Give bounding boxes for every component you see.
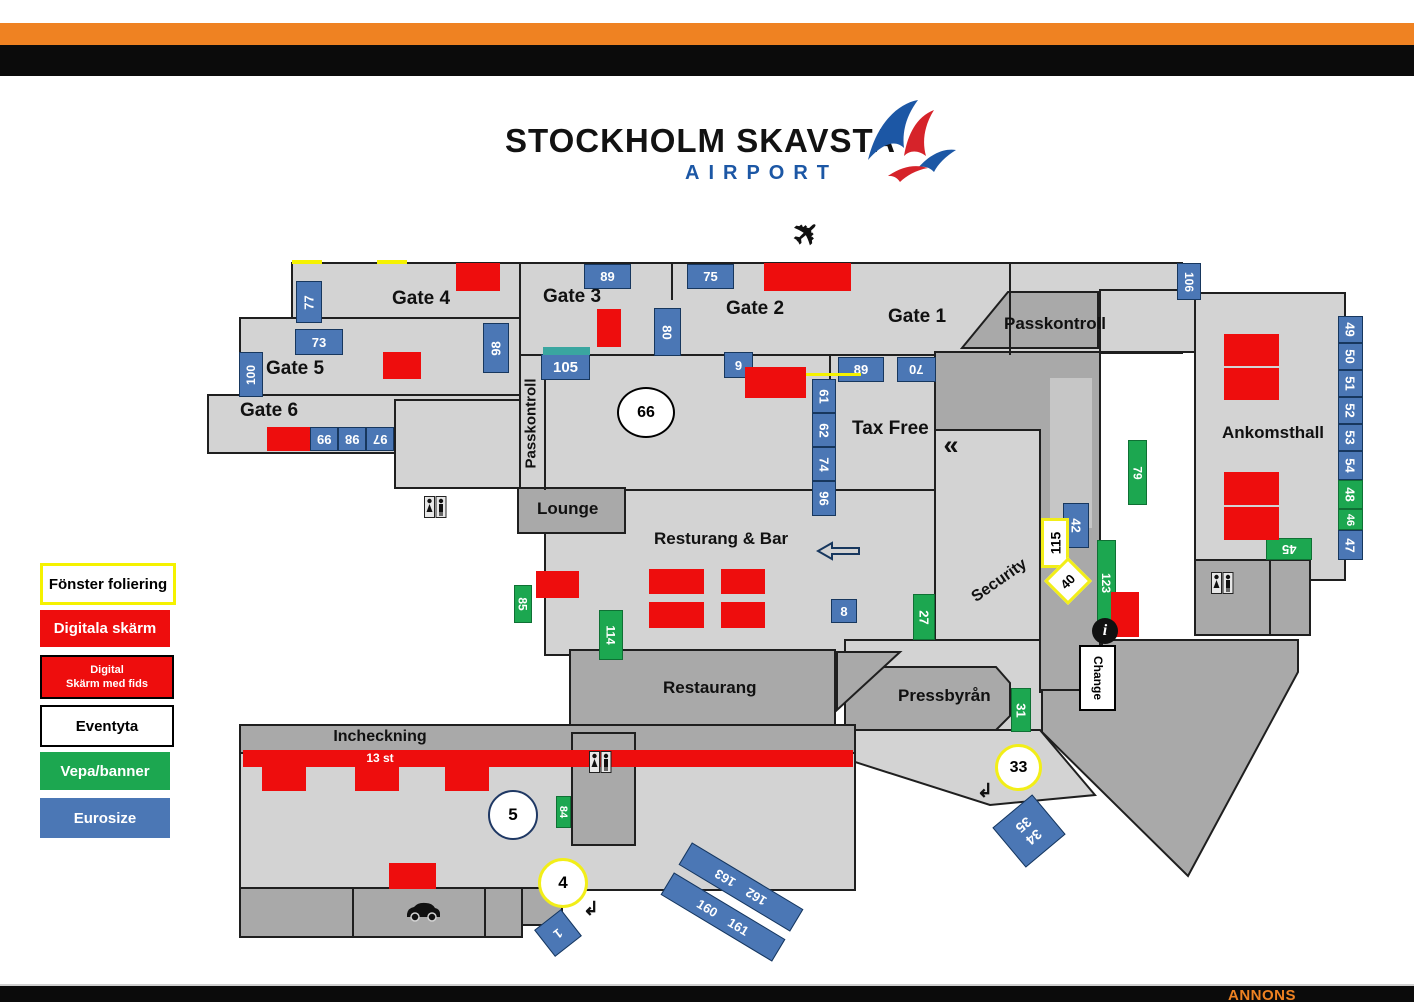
- marker-33: 33: [995, 744, 1042, 791]
- digital-marker: [1224, 334, 1279, 366]
- digital-marker: [389, 863, 436, 889]
- marker-98: 98: [338, 427, 366, 451]
- window-foil-line: [377, 260, 407, 264]
- marker-106: 106: [1177, 263, 1201, 300]
- marker-27: 27: [913, 594, 935, 640]
- marker-89: 89: [838, 357, 884, 382]
- label-restaurang: Restaurang: [663, 678, 757, 698]
- digital-marker: [456, 263, 500, 291]
- label-passkontroll-corridor: Passkontroll: [523, 365, 540, 483]
- marker-i: i: [1092, 618, 1118, 644]
- digital-marker: [649, 569, 704, 594]
- label-gate-5: Gate 5: [266, 358, 324, 380]
- marker-61: 61: [812, 379, 836, 413]
- teal-strip: [543, 347, 590, 355]
- marker-73: 73: [295, 329, 343, 355]
- marker-53: 53: [1338, 424, 1363, 451]
- marker-46: 46: [1338, 509, 1363, 530]
- digital-marker: [1224, 368, 1279, 400]
- label-gate-1: Gate 1: [888, 306, 946, 328]
- digital-marker: [721, 569, 765, 594]
- digital-marker: [355, 767, 399, 791]
- digital-marker: [597, 309, 621, 347]
- marker-47: 47: [1338, 530, 1363, 560]
- digital-marker: [536, 571, 579, 598]
- label-gate-3: Gate 3: [543, 286, 601, 308]
- marker-Change: Change: [1079, 645, 1116, 711]
- marker-97: 97: [366, 427, 394, 451]
- car-icon: [404, 900, 442, 923]
- label-gate-4: Gate 4: [392, 288, 450, 310]
- label-pressbyran: Pressbyrån: [898, 686, 991, 706]
- label-gate-6: Gate 6: [240, 400, 298, 422]
- floorplan-svg: [0, 0, 1414, 1000]
- marker-74: 74: [812, 447, 836, 481]
- digital-marker: [267, 427, 310, 451]
- marker-84: 84: [556, 796, 571, 828]
- marker-31: 31: [1011, 688, 1031, 732]
- marker-114: 114: [599, 610, 623, 660]
- annonskarta-page: { "logo":{"title":"STOCKHOLM SKAVSTA","s…: [0, 0, 1414, 1000]
- marker-52: 52: [1338, 397, 1363, 424]
- marker-48: 48: [1338, 480, 1363, 509]
- label-incheckning: Incheckning: [300, 728, 460, 746]
- marker-66: 66: [617, 387, 675, 438]
- restroom-icon: [1211, 572, 1234, 594]
- marker-51: 51: [1338, 370, 1363, 397]
- marker-↲: ↲: [580, 898, 602, 920]
- marker-50: 50: [1338, 343, 1363, 370]
- marker-100: 100: [239, 352, 263, 397]
- marker-75: 75: [687, 264, 734, 289]
- bottom-black-bar: ANNONS: [0, 984, 1414, 1002]
- marker-«: «: [936, 430, 966, 460]
- left-arrow-icon: [816, 540, 860, 562]
- marker-85: 85: [514, 585, 532, 623]
- label-resturang-bar: Resturang & Bar: [654, 529, 788, 549]
- marker-105: 105: [541, 354, 590, 380]
- digital-marker: [383, 352, 421, 379]
- digital-marker: [745, 367, 806, 398]
- restroom-icon: [589, 751, 612, 773]
- digital-marker: [764, 263, 851, 291]
- marker-96: 96: [812, 481, 836, 516]
- marker-79: 79: [1128, 440, 1147, 505]
- marker-5: 5: [488, 790, 538, 840]
- window-foil-line: [292, 260, 322, 264]
- marker-99: 99: [310, 427, 338, 451]
- marker-45: 45: [1266, 538, 1312, 560]
- digital-marker: [649, 602, 704, 628]
- floorplan-map: Gate 4 Gate 3 Gate 2 Gate 1 Gate 5 Gate …: [0, 0, 1414, 1000]
- digital-marker: [243, 750, 853, 767]
- label-ankomsthall: Ankomsthall: [1222, 423, 1324, 443]
- window-foil-line: [806, 373, 861, 376]
- marker-89: 89: [584, 264, 631, 289]
- marker-54: 54: [1338, 451, 1363, 480]
- marker-62: 62: [812, 413, 836, 447]
- label-tax-free: Tax Free: [852, 418, 929, 440]
- marker-8: 8: [831, 599, 857, 623]
- label-gate-2: Gate 2: [726, 298, 784, 320]
- digital-marker: [262, 767, 306, 791]
- marker-↲: ↲: [974, 780, 996, 802]
- label-lounge: Lounge: [537, 499, 598, 519]
- digital-marker: [445, 767, 489, 791]
- marker-70: 70: [897, 357, 936, 382]
- marker-98: 98: [483, 323, 509, 373]
- annons-label: ANNONS: [1228, 987, 1296, 1004]
- marker-80: 80: [654, 308, 681, 356]
- label-passkontroll-room: Passkontroll: [1004, 314, 1106, 334]
- digital-marker: [1224, 507, 1279, 540]
- marker-49: 49: [1338, 316, 1363, 343]
- label-checkin-count: 13 st: [340, 751, 420, 765]
- digital-marker: [721, 602, 765, 628]
- marker-77: 77: [296, 281, 322, 323]
- digital-marker: [1224, 472, 1279, 505]
- restroom-icon: [424, 496, 447, 517]
